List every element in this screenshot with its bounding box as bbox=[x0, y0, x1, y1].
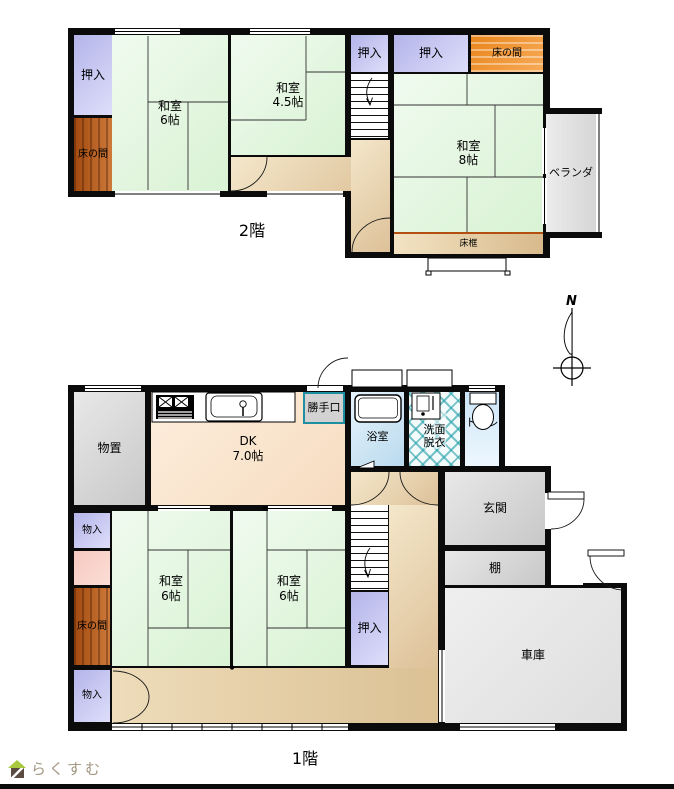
room-label: 和室 8帖 bbox=[456, 139, 480, 168]
f1-garage-left-window bbox=[439, 650, 445, 722]
room-f1-washitsu-6-left: 和室 6帖 bbox=[112, 511, 230, 666]
f1-genkan-door-opening bbox=[545, 493, 551, 529]
room-f2-oshiire-right: 押入 bbox=[394, 35, 468, 72]
room-f1-katteguchi: 勝手口 bbox=[303, 392, 345, 424]
compass-north-symbol: N bbox=[553, 294, 591, 386]
f1-pink-cell bbox=[74, 551, 110, 585]
room-label: 和室 4.5帖 bbox=[272, 81, 303, 110]
f1-corridor-top bbox=[351, 472, 438, 505]
f1-floor-label: 1階 bbox=[275, 746, 335, 768]
room-f1-washitsu-6-right: 和室 6帖 bbox=[233, 511, 345, 666]
room-f1-yokushitsu: 浴室 bbox=[351, 392, 404, 466]
f2-veranda-railing bbox=[596, 114, 602, 232]
f1-dk-opening-2 bbox=[268, 506, 332, 511]
f1-genkan-door-leaf bbox=[548, 492, 584, 499]
f2-corridor-vertical bbox=[351, 140, 390, 252]
f1-engawa-corridor bbox=[112, 668, 438, 723]
house-logo-icon bbox=[8, 760, 26, 778]
room-f2-oshiire-mid: 押入 bbox=[351, 35, 388, 72]
room-f1-genkan: 玄関 bbox=[445, 472, 545, 545]
room-label: 床の間 bbox=[77, 621, 107, 633]
f2-window-corridor bbox=[267, 191, 343, 197]
room-f2-tokonoma-left: 床の間 bbox=[74, 118, 112, 191]
f1-garage-door-leaf bbox=[588, 550, 624, 556]
room-label: 床の間 bbox=[492, 48, 522, 60]
bottom-border-bar bbox=[0, 784, 674, 789]
room-label: 和室 6帖 bbox=[159, 574, 183, 603]
porch-outlines bbox=[352, 258, 510, 387]
f2-window-veranda-2 bbox=[542, 178, 547, 224]
room-f1-tokonoma: 床の間 bbox=[74, 588, 110, 665]
room-label: 押入 bbox=[357, 621, 381, 635]
f2-window-veranda-1 bbox=[542, 128, 547, 174]
room-f1-oshiire: 押入 bbox=[351, 592, 388, 665]
f1-dk-opening-1 bbox=[158, 506, 210, 511]
f2-tokogamachi-strip: 床框 bbox=[394, 232, 543, 254]
logo-text: らくすむ bbox=[31, 758, 103, 779]
room-label: 洗面 脱衣 bbox=[424, 409, 446, 449]
room-label: 押入 bbox=[419, 46, 443, 60]
f2-staircase bbox=[351, 74, 389, 138]
f2-floor-label: 2階 bbox=[222, 218, 282, 240]
f2-window-bottom-left bbox=[115, 191, 220, 197]
room-f2-oshiire-left: 押入 bbox=[74, 35, 112, 115]
room-label: 押入 bbox=[81, 68, 105, 82]
room-label: 床の間 bbox=[78, 149, 108, 161]
room-label: 勝手口 bbox=[308, 401, 341, 414]
room-label: 棚 bbox=[489, 561, 501, 575]
f1-genkan-door-arc bbox=[551, 499, 584, 529]
rakusumu-logo: らくすむ bbox=[8, 758, 103, 779]
room-f1-tana: 棚 bbox=[445, 551, 545, 585]
room-label: 玄関 bbox=[483, 501, 507, 515]
room-label: 押入 bbox=[357, 46, 381, 60]
room-f1-toilet: トイレ bbox=[465, 392, 499, 466]
f1-staircase bbox=[351, 505, 389, 590]
compass-north-label: N bbox=[566, 294, 577, 309]
f1-corridor-vertical bbox=[389, 505, 438, 668]
f1-katteguchi-door-arc bbox=[318, 358, 348, 388]
floorplan-canvas: 押入 床の間 和室 6帖 和室 4.5帖 押入 押入 床の間 和室 8帖 床框 … bbox=[0, 0, 674, 789]
f2-window-top-1 bbox=[115, 29, 180, 34]
room-label: 和室 6帖 bbox=[158, 99, 182, 128]
room-label: 物入 bbox=[82, 690, 102, 702]
room-f2-tokonoma-right: 床の間 bbox=[471, 35, 543, 72]
f1-engawa-bottom-window bbox=[112, 724, 348, 730]
room-label: 物入 bbox=[82, 525, 102, 537]
room-label: ベランダ bbox=[549, 166, 593, 179]
room-f1-senmen-datsui: 洗面 脱衣 bbox=[409, 392, 460, 466]
room-label: トイレ bbox=[466, 416, 499, 441]
room-f2-washitsu-4-5: 和室 4.5帖 bbox=[231, 35, 345, 155]
room-f2-veranda: ベランダ bbox=[546, 114, 596, 232]
room-f1-mononyu-top: 物入 bbox=[74, 513, 110, 548]
room-label: 物置 bbox=[97, 441, 121, 455]
room-f1-shako: 車庫 bbox=[445, 588, 621, 723]
f1-window-toilet bbox=[469, 386, 495, 391]
f2-window-top-2 bbox=[250, 29, 310, 34]
f2-porch-step bbox=[428, 258, 506, 271]
room-label: 和室 6帖 bbox=[277, 574, 301, 603]
room-f2-washitsu-6: 和室 6帖 bbox=[112, 35, 228, 191]
f1-katteguchi-opening bbox=[307, 386, 343, 391]
room-label: DK 7.0帖 bbox=[232, 434, 263, 463]
room-label: 車庫 bbox=[521, 648, 545, 662]
f1-window-monooki bbox=[85, 386, 141, 391]
f1-garage-bottom-opening bbox=[460, 724, 555, 730]
room-label: 浴室 bbox=[367, 414, 389, 443]
room-label: 床框 bbox=[459, 239, 477, 250]
room-f1-monooki: 物置 bbox=[74, 392, 145, 505]
room-f2-washitsu-8: 和室 8帖 bbox=[394, 74, 543, 232]
room-f1-mononyu-bottom: 物入 bbox=[74, 670, 110, 722]
